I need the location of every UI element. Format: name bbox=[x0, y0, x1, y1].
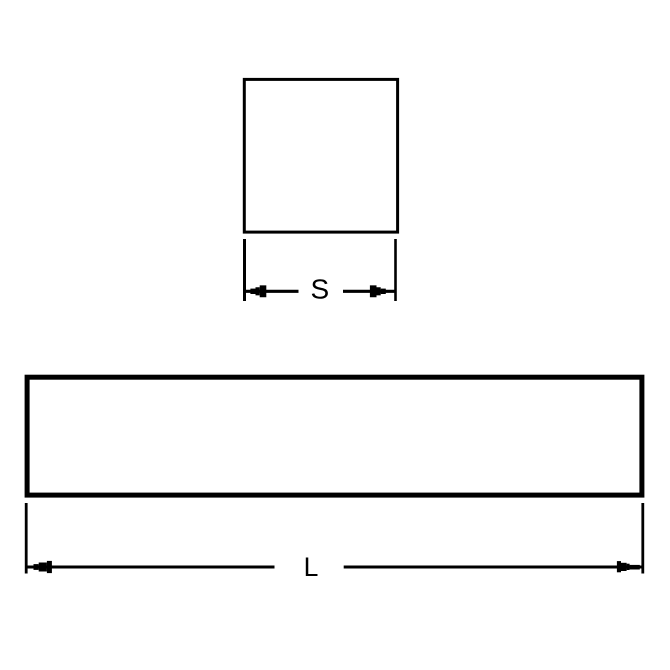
svg-text:L: L bbox=[304, 552, 319, 582]
svg-text:S: S bbox=[310, 273, 329, 304]
